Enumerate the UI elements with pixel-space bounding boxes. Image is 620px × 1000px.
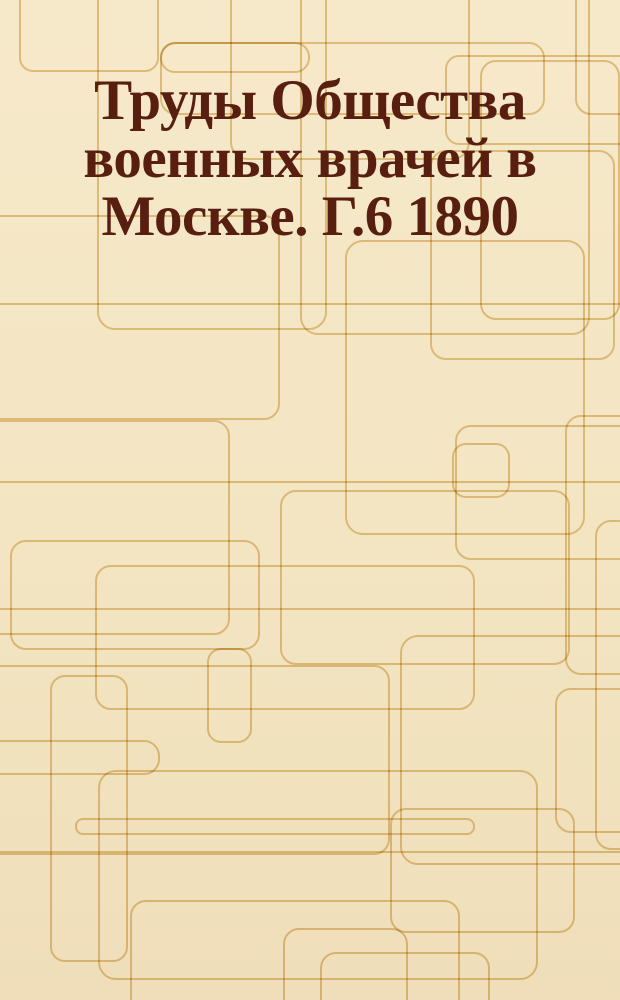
pattern-rounded-rectangle (283, 928, 408, 1000)
pattern-rounded-rectangle (207, 648, 252, 743)
book-title-line-2: военных врачей в (0, 130, 620, 188)
pattern-rounded-rectangle (452, 443, 510, 498)
pattern-rounded-rectangle (0, 740, 160, 775)
book-cover: Труды Общества военных врачей в Москве. … (0, 0, 620, 1000)
book-title-line-3: Москве. Г.6 1890 (0, 188, 620, 246)
book-title-line-1: Труды Общества (0, 72, 620, 130)
book-title: Труды Общества военных врачей в Москве. … (0, 72, 620, 246)
